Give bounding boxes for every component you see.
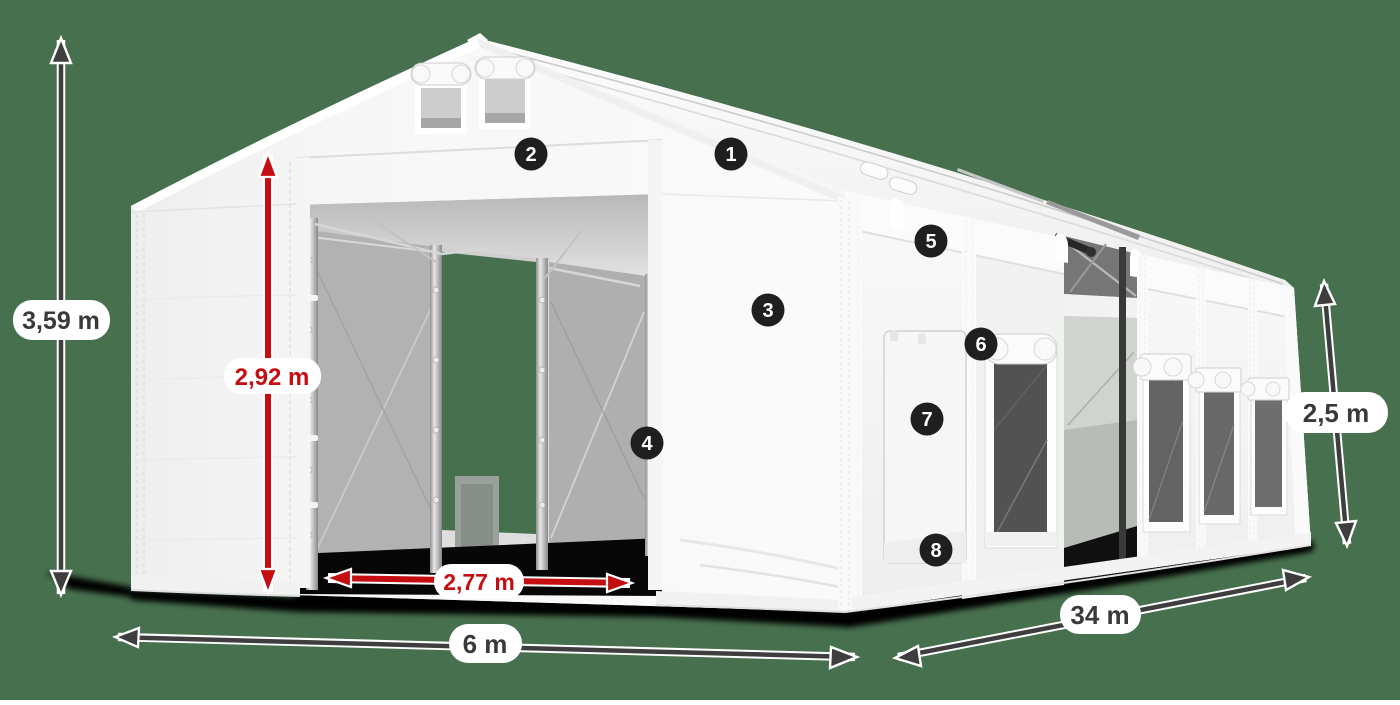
- svg-text:1: 1: [725, 144, 736, 166]
- svg-text:6: 6: [975, 334, 986, 356]
- svg-text:5: 5: [925, 231, 936, 253]
- svg-text:2,77 m: 2,77 m: [443, 569, 515, 595]
- svg-text:8: 8: [930, 540, 941, 562]
- svg-text:3,59 m: 3,59 m: [22, 307, 100, 335]
- svg-text:34 m: 34 m: [1070, 600, 1129, 630]
- svg-text:2,92 m: 2,92 m: [235, 364, 310, 391]
- svg-text:6 m: 6 m: [463, 629, 508, 659]
- svg-text:2,5 m: 2,5 m: [1303, 398, 1370, 428]
- svg-text:3: 3: [762, 300, 773, 322]
- svg-text:7: 7: [921, 409, 932, 431]
- svg-text:4: 4: [641, 433, 653, 455]
- svg-text:2: 2: [525, 144, 536, 166]
